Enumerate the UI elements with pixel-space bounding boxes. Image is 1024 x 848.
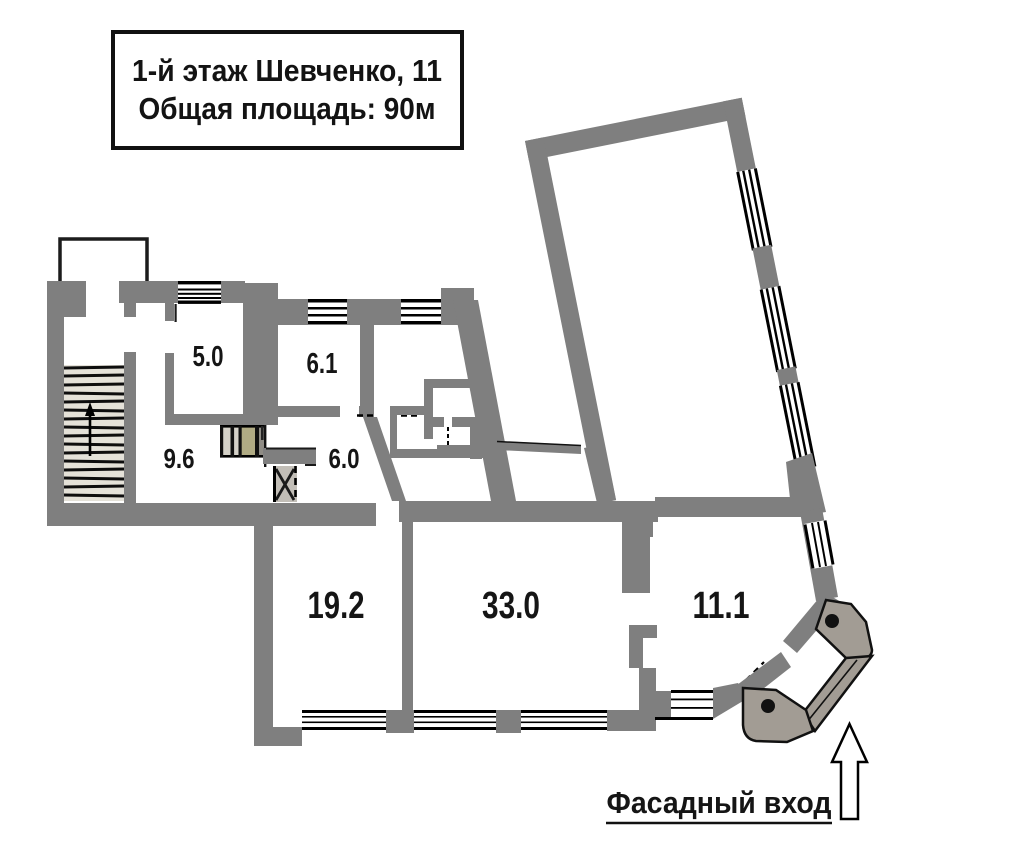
svg-text:Фасадный вход: Фасадный вход (607, 785, 832, 820)
svg-text:33.0: 33.0 (482, 585, 540, 627)
svg-text:5.0: 5.0 (193, 341, 224, 373)
svg-text:Общая площадь: 90м: Общая площадь: 90м (139, 91, 436, 126)
svg-text:6.0: 6.0 (329, 443, 360, 474)
svg-text:9.6: 9.6 (164, 443, 195, 474)
svg-text:6.1: 6.1 (307, 348, 338, 380)
svg-text:11.1: 11.1 (693, 585, 750, 627)
svg-text:19.2: 19.2 (308, 585, 365, 627)
svg-text:1-й этаж Шевченко, 11: 1-й этаж Шевченко, 11 (132, 53, 442, 88)
